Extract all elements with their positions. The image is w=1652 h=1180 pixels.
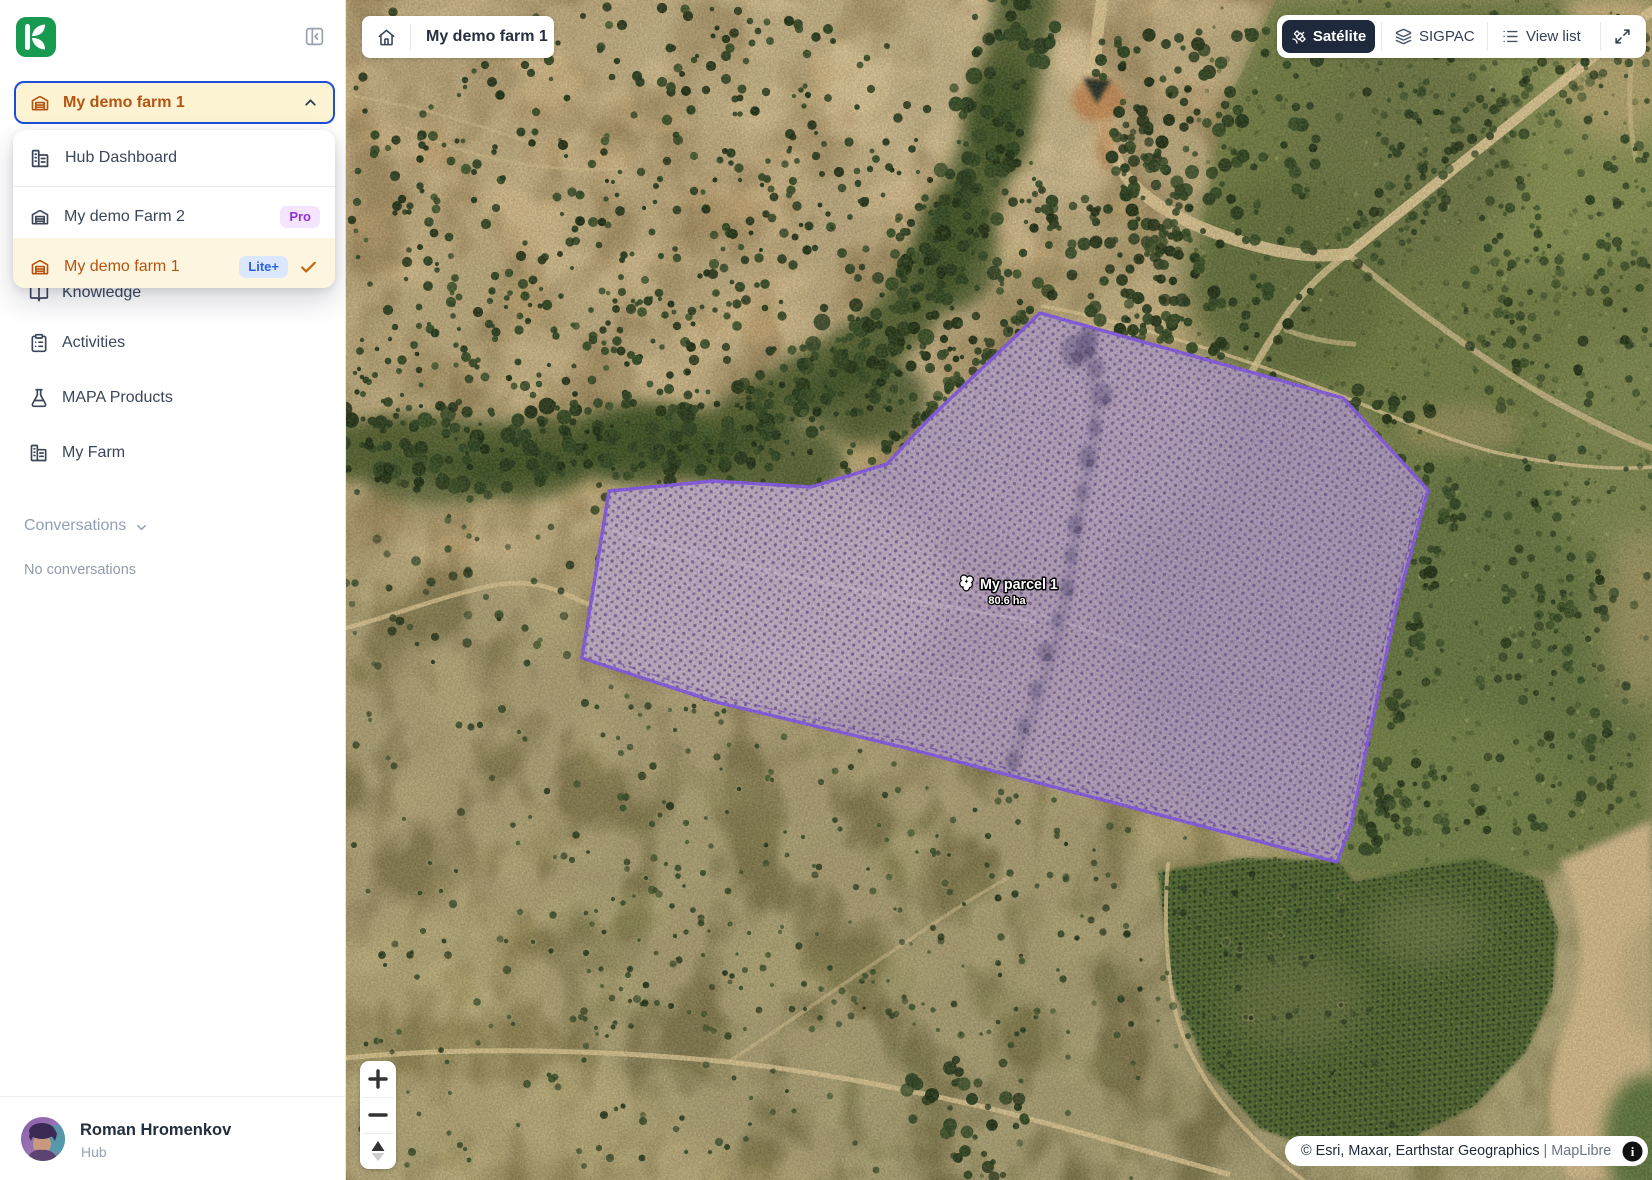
svg-text:i: i bbox=[1631, 1144, 1635, 1159]
svg-text:My parcel 1: My parcel 1 bbox=[980, 577, 1058, 593]
svg-text:80.6 ha: 80.6 ha bbox=[988, 595, 1026, 607]
